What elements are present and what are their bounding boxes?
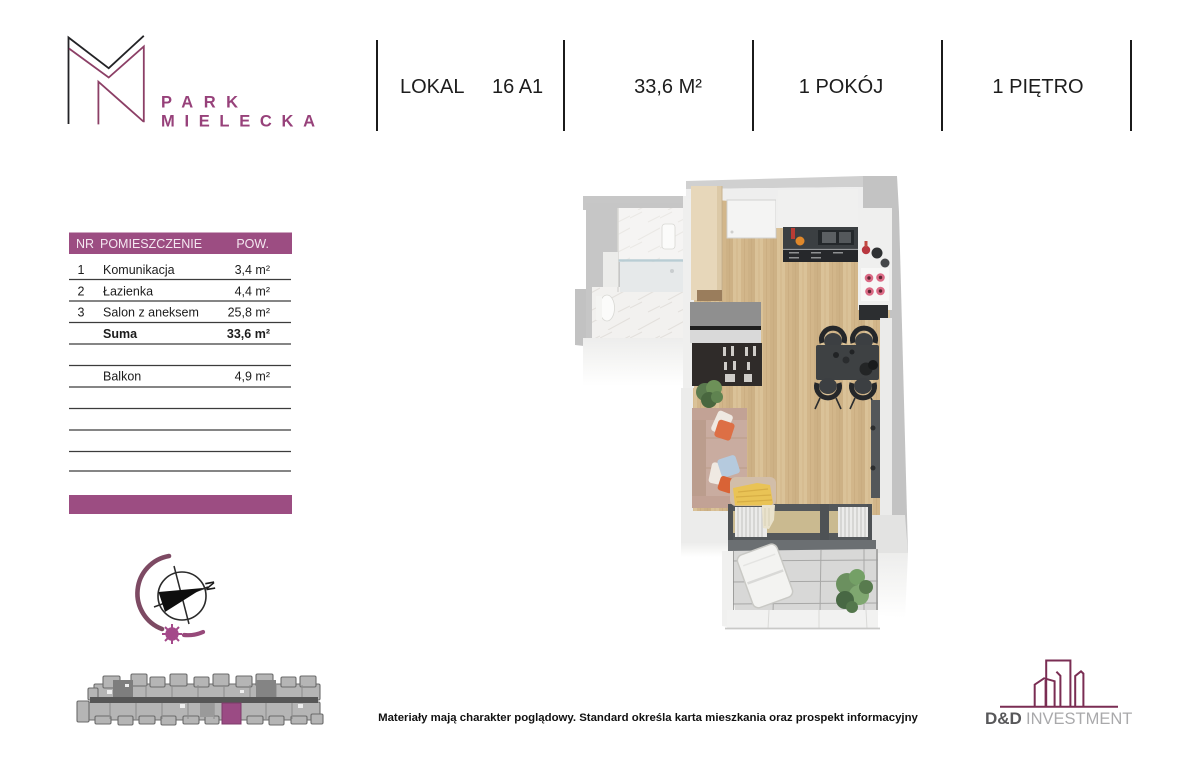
svg-text:33,6 m²: 33,6 m² [227,327,270,341]
svg-text:3,4 m²: 3,4 m² [235,263,270,277]
svg-text:2: 2 [78,285,85,299]
svg-text:D&D: D&D [985,709,1022,728]
svg-text:N: N [202,580,218,592]
svg-text:INVESTMENT: INVESTMENT [1026,710,1132,728]
svg-text:Komunikacja: Komunikacja [103,263,175,277]
svg-text:4,9 m²: 4,9 m² [235,370,270,384]
svg-text:3: 3 [78,306,85,320]
svg-text:4,4 m²: 4,4 m² [235,285,270,299]
svg-text:Balkon: Balkon [103,370,141,384]
svg-text:NR: NR [76,237,94,251]
svg-text:Łazienka: Łazienka [103,285,153,299]
svg-text:Suma: Suma [103,327,138,341]
svg-text:1: 1 [78,263,85,277]
svg-text:POW.: POW. [236,237,269,251]
svg-text:25,8 m²: 25,8 m² [228,306,270,320]
svg-text:POMIESZCZENIE: POMIESZCZENIE [100,237,202,251]
svg-text:Salon z aneksem: Salon z aneksem [103,306,199,320]
